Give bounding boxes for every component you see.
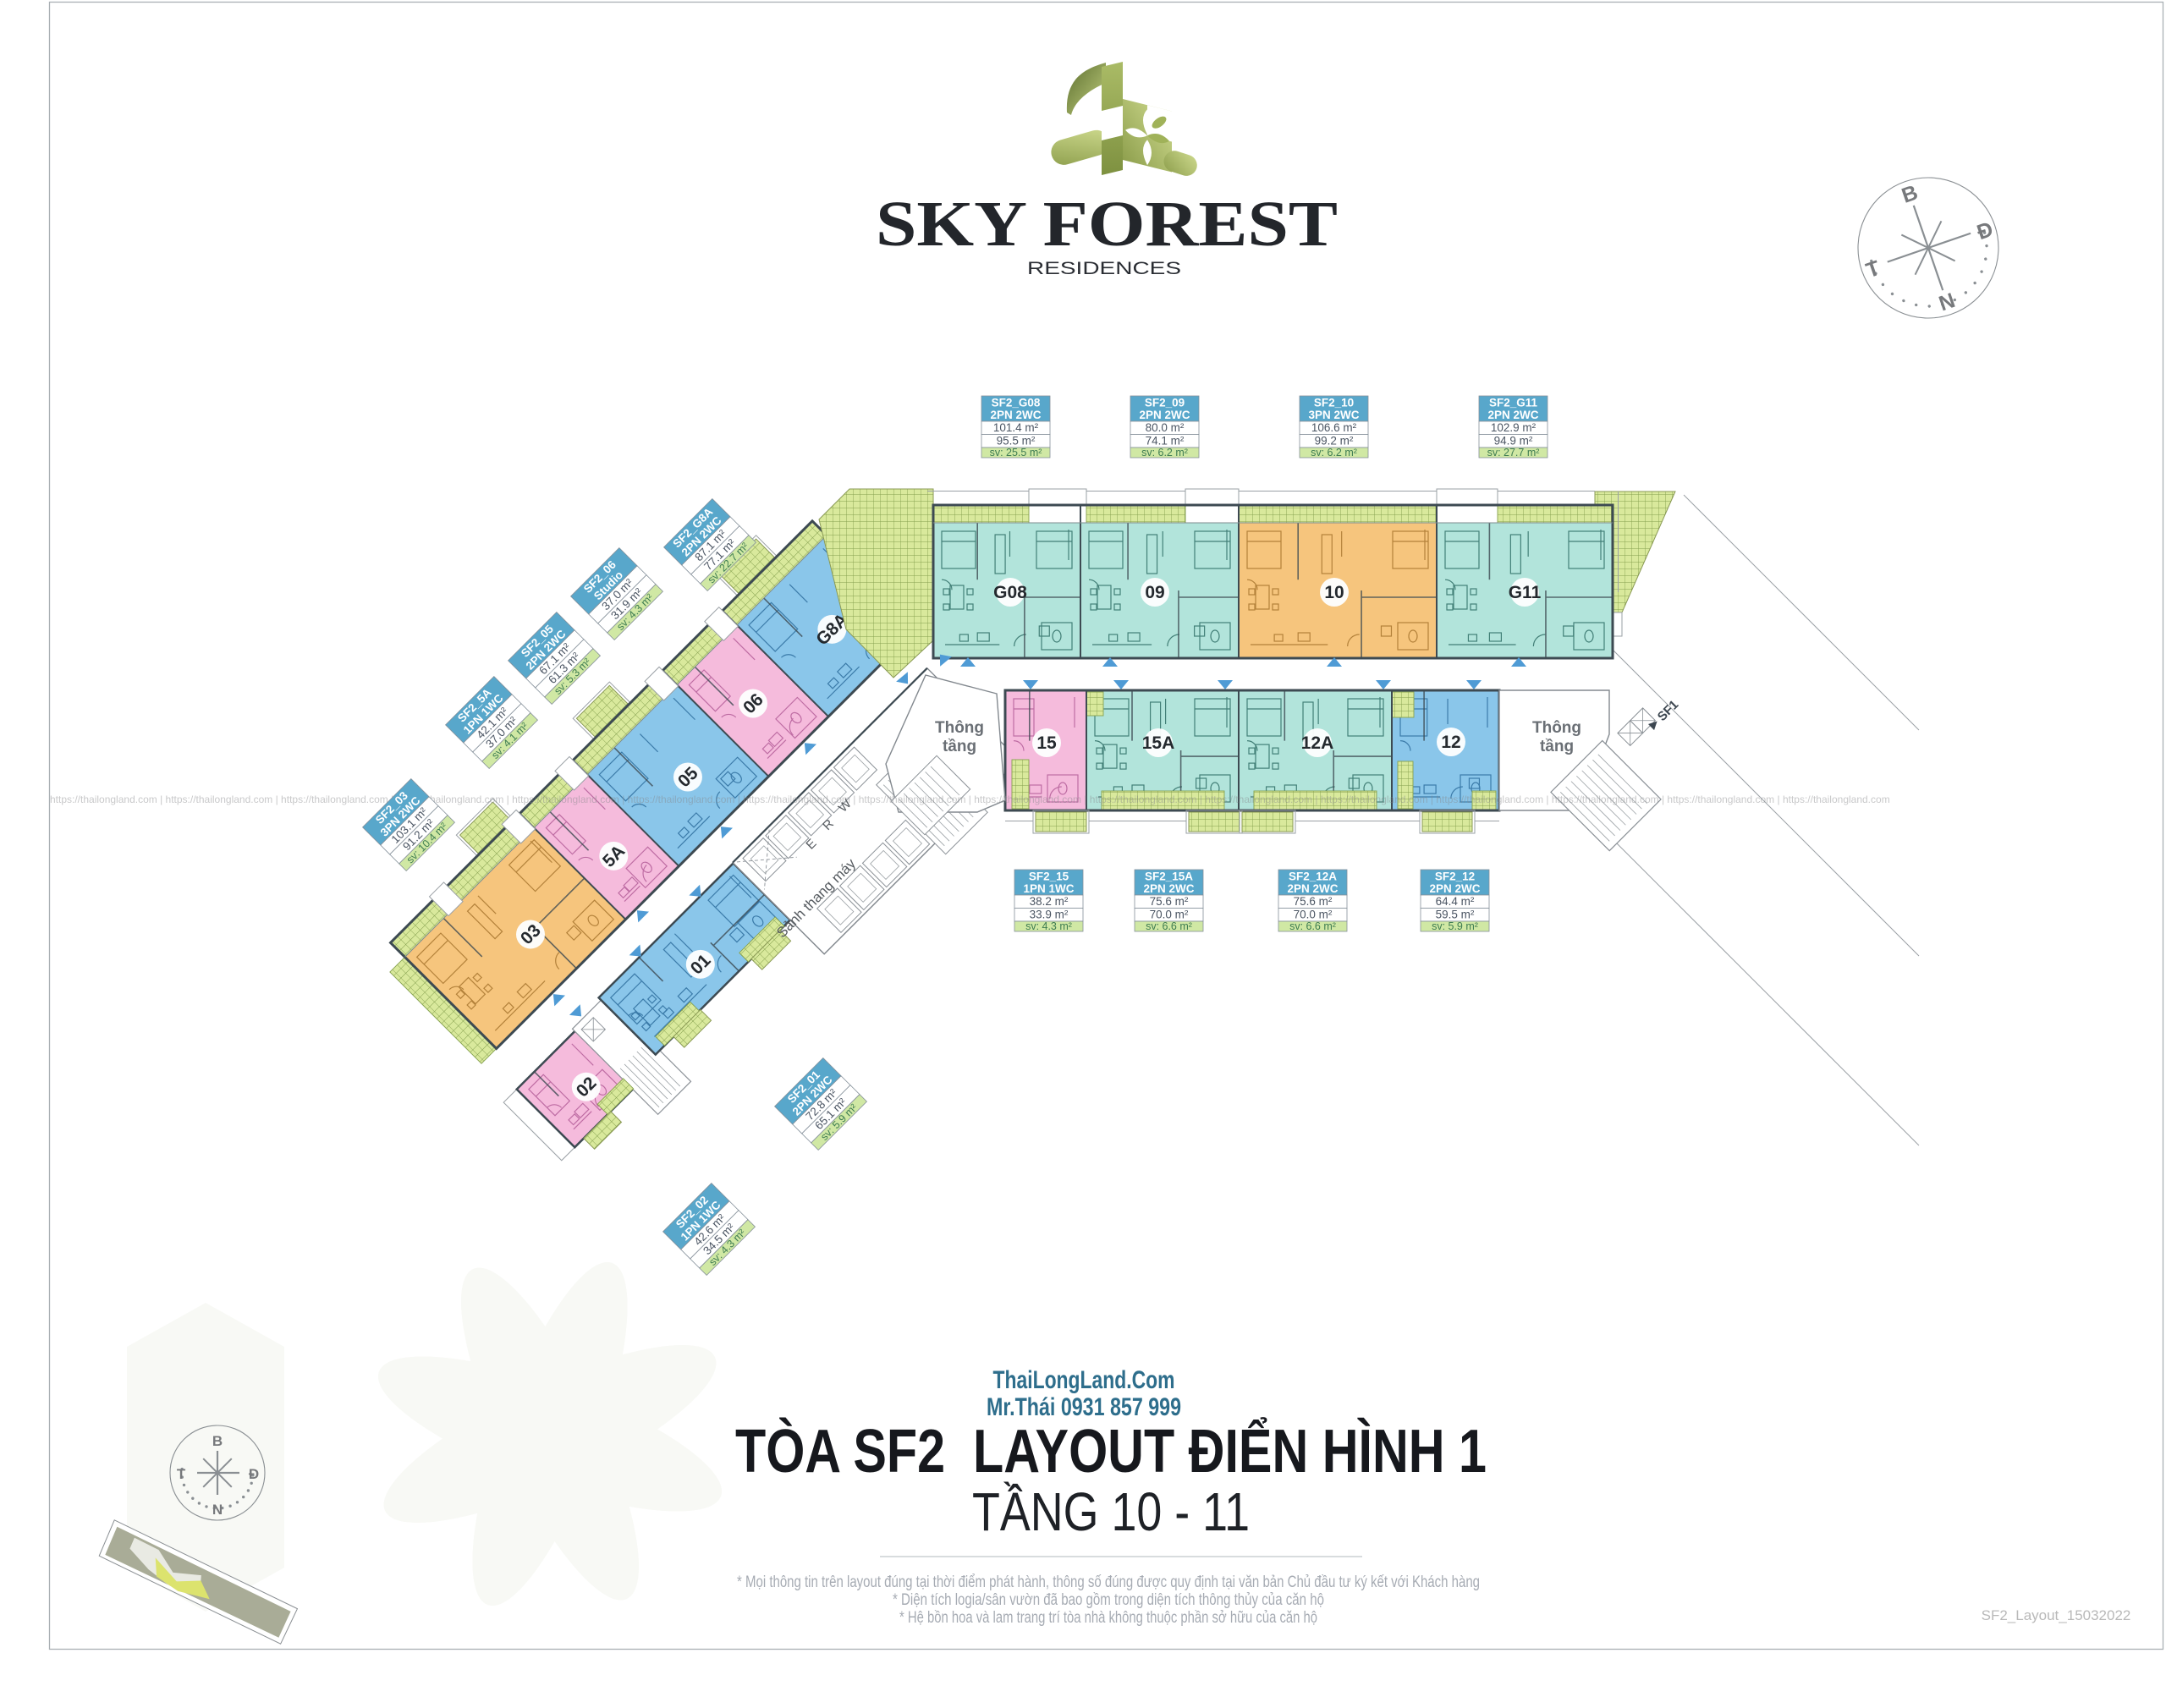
svg-text:TẦNG 10 - 11: TẦNG 10 - 11 <box>972 1481 1250 1542</box>
svg-text:74.1 m²: 74.1 m² <box>1146 435 1185 448</box>
svg-text:https://thailongland.com | htt: https://thailongland.com | https://thail… <box>50 794 1890 805</box>
svg-text:SF2_10: SF2_10 <box>1314 397 1354 409</box>
svg-text:N: N <box>212 1502 223 1518</box>
svg-text:80.0 m²: 80.0 m² <box>1146 421 1185 434</box>
svg-text:SF2_Layout_15032022: SF2_Layout_15032022 <box>1982 1607 2131 1623</box>
svg-text:* Diện tích logia/sân vườn đã: * Diện tích logia/sân vườn đã bao gồm tr… <box>893 1591 1324 1609</box>
svg-text:10: 10 <box>1324 583 1344 602</box>
svg-text:sv: 6.6 m²: sv: 6.6 m² <box>1289 920 1336 932</box>
svg-text:tầng: tầng <box>1540 738 1574 755</box>
svg-text:SF2_12A: SF2_12A <box>1289 870 1337 883</box>
svg-text:70.0 m²: 70.0 m² <box>1150 909 1189 921</box>
svg-text:Đ: Đ <box>249 1466 259 1482</box>
svg-text:sv: 6.2 m²: sv: 6.2 m² <box>1311 447 1357 459</box>
svg-text:SF2_15A: SF2_15A <box>1145 870 1193 883</box>
svg-text:2PN 2WC: 2PN 2WC <box>1287 882 1338 895</box>
svg-text:2PN 2WC: 2PN 2WC <box>1139 409 1190 421</box>
svg-text:TÒA SF2 LAYOUT ĐIỂN HÌNH 1: TÒA SF2 LAYOUT ĐIỂN HÌNH 1 <box>735 1417 1487 1486</box>
svg-text:RESIDENCES: RESIDENCES <box>1027 259 1181 278</box>
svg-text:* Hệ bồn hoa và lam trang trí: * Hệ bồn hoa và lam trang trí tòa nhà kh… <box>899 1609 1317 1627</box>
svg-text:3PN 2WC: 3PN 2WC <box>1308 409 1359 421</box>
svg-text:SKY FOREST: SKY FOREST <box>876 189 1338 260</box>
svg-text:59.5 m²: 59.5 m² <box>1436 909 1475 921</box>
svg-text:64.4 m²: 64.4 m² <box>1436 895 1475 908</box>
svg-text:2PN 2WC: 2PN 2WC <box>990 409 1041 421</box>
svg-text:sv: 6.6 m²: sv: 6.6 m² <box>1146 920 1192 932</box>
svg-text:G11: G11 <box>1509 583 1542 602</box>
svg-text:12: 12 <box>1441 733 1460 752</box>
svg-text:38.2 m²: 38.2 m² <box>1030 895 1069 908</box>
svg-text:B: B <box>212 1433 223 1449</box>
svg-text:12A: 12A <box>1301 733 1334 753</box>
svg-text:95.5 m²: 95.5 m² <box>997 435 1036 448</box>
svg-text:101.4 m²: 101.4 m² <box>993 421 1039 434</box>
svg-text:09: 09 <box>1145 583 1164 602</box>
svg-text:sv: 5.9 m²: sv: 5.9 m² <box>1432 920 1478 932</box>
svg-text:tầng: tầng <box>943 738 976 755</box>
svg-text:94.9 m²: 94.9 m² <box>1494 435 1533 448</box>
svg-text:T: T <box>177 1466 186 1482</box>
svg-text:2PN 2WC: 2PN 2WC <box>1429 882 1480 895</box>
svg-text:sv: 6.2 m²: sv: 6.2 m² <box>1141 447 1188 459</box>
svg-text:2PN 2WC: 2PN 2WC <box>1143 882 1194 895</box>
svg-text:Thông: Thông <box>935 719 984 737</box>
svg-text:70.0 m²: 70.0 m² <box>1294 909 1333 921</box>
svg-text:sv: 4.3 m²: sv: 4.3 m² <box>1025 920 1072 932</box>
svg-text:99.2 m²: 99.2 m² <box>1315 435 1354 448</box>
svg-text:15A: 15A <box>1142 733 1175 753</box>
svg-text:33.9 m²: 33.9 m² <box>1030 909 1069 921</box>
svg-text:15: 15 <box>1036 733 1057 753</box>
svg-text:sv: 25.5 m²: sv: 25.5 m² <box>990 447 1042 459</box>
svg-text:75.6 m²: 75.6 m² <box>1294 895 1333 908</box>
svg-text:SF2_12: SF2_12 <box>1435 870 1475 883</box>
svg-text:Thông: Thông <box>1532 719 1581 737</box>
svg-text:SF2_09: SF2_09 <box>1145 397 1185 409</box>
svg-text:SF2_G08: SF2_G08 <box>992 397 1041 409</box>
svg-text:SF2_15: SF2_15 <box>1029 870 1069 883</box>
svg-text:75.6 m²: 75.6 m² <box>1150 895 1189 908</box>
svg-text:106.6 m²: 106.6 m² <box>1311 421 1357 434</box>
svg-text:2PN 2WC: 2PN 2WC <box>1487 409 1538 421</box>
svg-text:ThaiLongLand.Com: ThaiLongLand.Com <box>993 1366 1175 1394</box>
svg-text:sv: 27.7 m²: sv: 27.7 m² <box>1487 447 1540 459</box>
svg-text:102.9 m²: 102.9 m² <box>1491 421 1537 434</box>
svg-text:1PN 1WC: 1PN 1WC <box>1023 882 1074 895</box>
svg-text:G08: G08 <box>993 583 1027 602</box>
svg-text:SF2_G11: SF2_G11 <box>1489 397 1538 409</box>
svg-text:* Mọi thông tin trên layout đú: * Mọi thông tin trên layout đúng tại thờ… <box>737 1573 1480 1591</box>
